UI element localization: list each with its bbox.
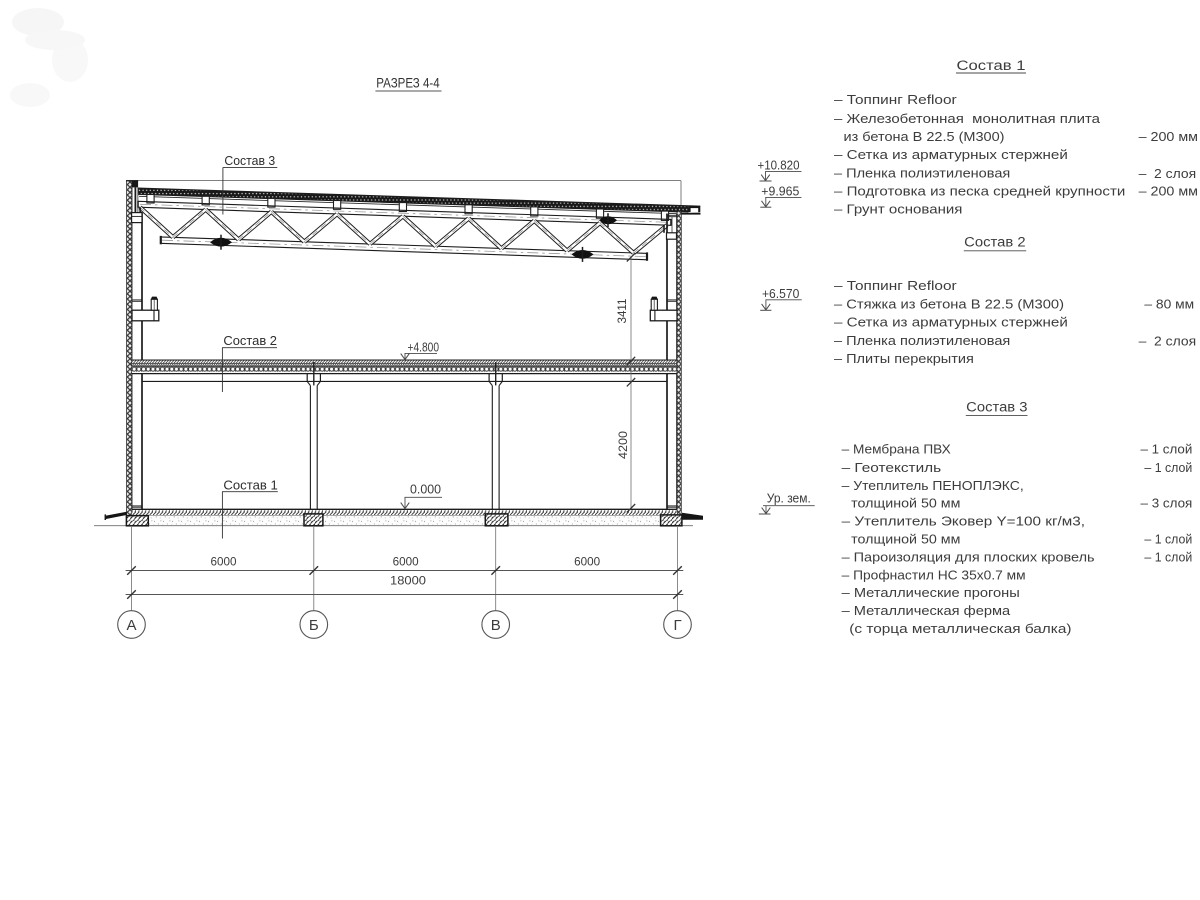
svg-text:– 1 слой: – 1 слой (1144, 532, 1192, 547)
svg-text:– 80 мм: – 80 мм (1144, 297, 1194, 312)
svg-text:0.000: 0.000 (410, 481, 441, 496)
svg-text:+4.800: +4.800 (408, 339, 440, 354)
svg-text:6000: 6000 (393, 555, 419, 569)
svg-text:А: А (126, 617, 136, 634)
svg-text:Состав 1: Состав 1 (223, 478, 277, 492)
svg-text:– 2 слоя: – 2 слоя (1139, 166, 1197, 181)
svg-text:+9.965: +9.965 (761, 183, 799, 198)
svg-text:– 2 слоя: – 2 слоя (1139, 333, 1197, 348)
svg-text:4200: 4200 (616, 431, 630, 459)
svg-text:– 1 слой: – 1 слой (1144, 460, 1192, 475)
svg-text:– Грунт основания: – Грунт основания (834, 202, 962, 217)
svg-text:РАЗРЕЗ 4-4: РАЗРЕЗ 4-4 (376, 75, 440, 91)
svg-text:Ур. зем.: Ур. зем. (767, 491, 811, 506)
svg-text:толщиной 50 мм: толщиной 50 мм (851, 532, 960, 547)
svg-text:– Металлические прогоны: – Металлические прогоны (842, 585, 1020, 600)
svg-text:– Подготовка из песка средней: – Подготовка из песка средней крупности (834, 183, 1125, 198)
svg-text:Б: Б (309, 617, 319, 634)
svg-text:– Металлическая ферма: – Металлическая ферма (842, 603, 1011, 618)
svg-text:– Пленка полиэтиленовая: – Пленка полиэтиленовая (834, 165, 1010, 180)
svg-text:Состав 2: Состав 2 (223, 334, 277, 348)
svg-text:– Топпинг Refloor: – Топпинг Refloor (834, 278, 957, 293)
svg-text:18000: 18000 (390, 573, 426, 587)
svg-text:толщиной 50 мм: толщиной 50 мм (851, 496, 960, 511)
svg-text:+6.570: +6.570 (762, 286, 799, 301)
svg-text:+10.820: +10.820 (758, 157, 800, 172)
svg-text:Состав 3: Состав 3 (966, 399, 1027, 414)
svg-text:3411: 3411 (615, 298, 629, 323)
svg-text:из бетона В 22.5 (М300): из бетона В 22.5 (М300) (844, 129, 1005, 144)
svg-text:6000: 6000 (574, 555, 600, 569)
svg-text:– 200 мм: – 200 мм (1139, 183, 1198, 198)
svg-text:(с торца металлическая балка): (с торца металлическая балка) (849, 621, 1071, 636)
svg-text:– Пароизоляция для плоских кро: – Пароизоляция для плоских кровель (842, 549, 1095, 564)
svg-text:– Железобетонная монолитная п: – Железобетонная монолитная плита (834, 111, 1101, 126)
svg-text:– 1 слой: – 1 слой (1144, 549, 1192, 564)
svg-text:6000: 6000 (211, 555, 237, 569)
svg-text:Г: Г (673, 617, 681, 634)
svg-text:– Топпинг Refloor: – Топпинг Refloor (834, 92, 957, 107)
svg-text:– Сетка из арматурных стержней: – Сетка из арматурных стержней (834, 315, 1068, 330)
svg-text:– Утеплитель ПЕНОПЛЭКС,: – Утеплитель ПЕНОПЛЭКС, (842, 478, 1024, 493)
svg-text:Состав 1: Состав 1 (957, 58, 1026, 73)
svg-text:– Сетка из арматурных стержней: – Сетка из арматурных стержней (834, 147, 1068, 162)
svg-text:– 3 слоя: – 3 слоя (1141, 496, 1193, 511)
svg-text:– 200 мм: – 200 мм (1139, 129, 1198, 144)
svg-text:Состав 2: Состав 2 (964, 235, 1025, 250)
svg-text:Состав 3: Состав 3 (224, 154, 275, 168)
svg-text:– Геотекстиль: – Геотекстиль (842, 460, 942, 475)
svg-text:– Профнастил НС 35х0.7 мм: – Профнастил НС 35х0.7 мм (842, 567, 1026, 582)
svg-text:– Плиты перекрытия: – Плиты перекрытия (834, 351, 974, 366)
svg-text:– Мембрана ПВХ: – Мембрана ПВХ (842, 442, 952, 457)
svg-text:– Утеплитель Эковер Y=100 кг/м: – Утеплитель Эковер Y=100 кг/м3, (842, 514, 1085, 529)
svg-text:– Пленка полиэтиленовая: – Пленка полиэтиленовая (834, 333, 1010, 348)
svg-text:– 1 слой: – 1 слой (1141, 442, 1193, 457)
svg-text:В: В (491, 617, 501, 634)
svg-text:– Стяжка из бетона В 22.5 (М30: – Стяжка из бетона В 22.5 (М300) (834, 297, 1064, 312)
